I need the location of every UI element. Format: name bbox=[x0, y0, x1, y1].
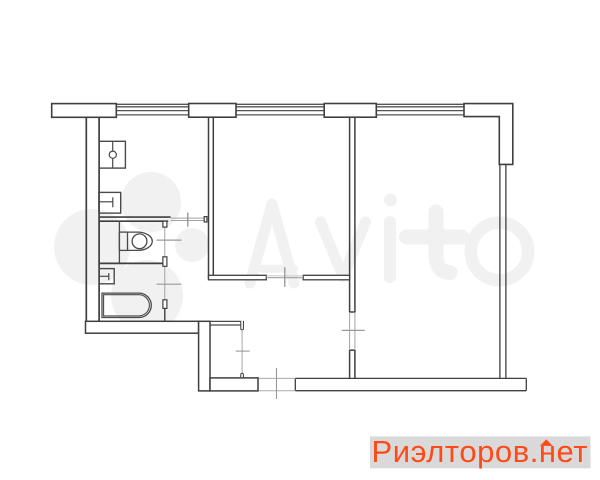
svg-text:Риэлторов.нет: Риэлторов.нет bbox=[372, 434, 589, 469]
